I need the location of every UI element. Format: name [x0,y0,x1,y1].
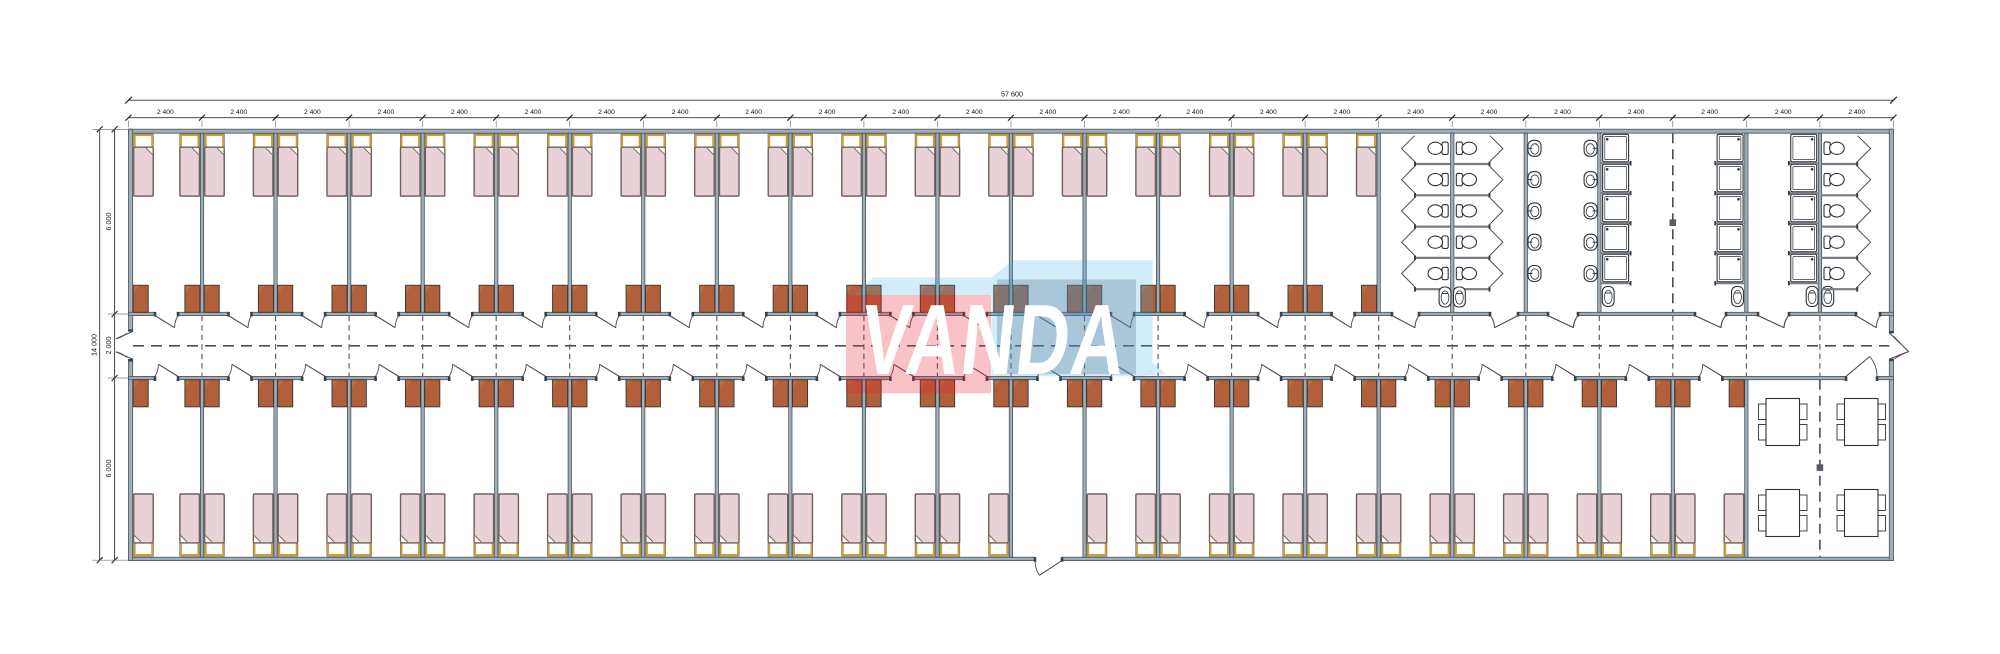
svg-text:2 400: 2 400 [451,109,468,116]
svg-text:6 000: 6 000 [104,460,113,478]
svg-text:2 400: 2 400 [745,109,762,116]
svg-text:VANDA: VANDA [856,283,1133,395]
svg-text:2 400: 2 400 [1113,109,1130,116]
svg-text:2 400: 2 400 [378,109,395,116]
svg-text:2 400: 2 400 [1775,109,1792,116]
svg-text:2 400: 2 400 [1848,109,1865,116]
svg-text:2 000: 2 000 [104,337,113,355]
svg-text:2 400: 2 400 [1334,109,1351,116]
svg-text:2 400: 2 400 [230,109,247,116]
svg-text:2 400: 2 400 [966,109,983,116]
svg-text:2 400: 2 400 [1554,109,1571,116]
svg-text:14 000: 14 000 [89,334,98,356]
svg-text:2 400: 2 400 [819,109,836,116]
svg-text:2 400: 2 400 [1039,109,1056,116]
svg-text:2 400: 2 400 [892,109,909,116]
svg-text:2 400: 2 400 [304,109,321,116]
svg-text:2 400: 2 400 [1628,109,1645,116]
svg-text:2 400: 2 400 [1407,109,1424,116]
svg-text:2 400: 2 400 [525,109,542,116]
svg-text:2 400: 2 400 [1701,109,1718,116]
svg-text:2 400: 2 400 [1260,109,1277,116]
svg-text:2 400: 2 400 [157,109,174,116]
svg-text:6 000: 6 000 [104,213,113,231]
svg-text:2 400: 2 400 [598,109,615,116]
svg-text:57 600: 57 600 [1001,90,1023,99]
svg-text:2 400: 2 400 [672,109,689,116]
svg-text:2 400: 2 400 [1186,109,1203,116]
svg-text:2 400: 2 400 [1481,109,1498,116]
